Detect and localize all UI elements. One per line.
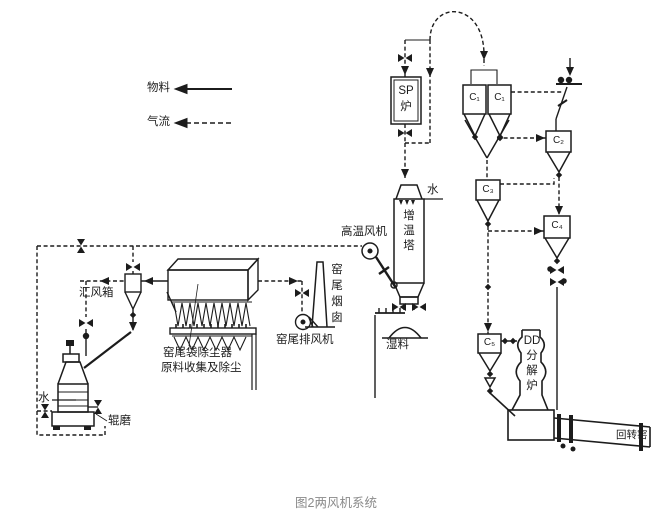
air-collecting-box [80, 274, 168, 330]
cyclone-c5-label: C₅ [478, 337, 501, 349]
c4-valve-icon [550, 266, 564, 274]
junction-dot [485, 284, 491, 290]
legend-airflow-label: 气流 [147, 116, 170, 129]
process-flow-diagram: 物料 气流 SP 炉 C₁ C₁ C₂ C₃ C₄ C₅ DD 分 解 炉 回转… [0, 0, 672, 516]
arrow-down-icon [401, 66, 409, 75]
legend-arrows [175, 85, 232, 128]
cyclone-c1a-label: C₁ [463, 92, 486, 104]
legend-material-label: 物料 [147, 82, 170, 95]
tower-discharge-conveyor [375, 308, 405, 398]
rotary-kiln-label: 回转窑 [616, 429, 648, 441]
arrow-down-icon [480, 51, 488, 60]
high-temp-fan-label: 高温风机 [341, 226, 387, 239]
junction-dot [487, 371, 493, 377]
cyclone-c1b-label: C₁ [488, 92, 511, 104]
figure-caption: 图2两风机系统 [0, 492, 672, 511]
cyclone-c4 [544, 216, 570, 410]
mill-water-label: 水 [38, 392, 50, 405]
wet-material-pile [382, 328, 428, 339]
tower-water-label: 水 [427, 184, 439, 197]
raw-material-note-label: 原料收集及除尘 [161, 362, 242, 375]
airflow-arrow-icon [175, 119, 187, 128]
kiln-tail-exhaust-fan-label: 窑尾排风机 [276, 334, 334, 347]
roller-mill-label: 辊磨 [108, 415, 131, 428]
arrow-down-icon [555, 206, 563, 215]
arrow-left-icon [100, 277, 109, 285]
kiln-tail-chimney-label: 窑 尾 烟 囱 [330, 262, 344, 326]
arrow-down-icon [129, 322, 137, 331]
wet-material-label: 湿料 [386, 339, 409, 352]
branch-valve-icon [126, 263, 140, 271]
junction-dot [130, 312, 136, 318]
junction-dot [554, 258, 560, 264]
junction-dot [487, 388, 493, 394]
arrow-right-icon [536, 134, 545, 142]
air-collecting-box-label: 汇风箱 [79, 287, 114, 300]
cyclone-c2-label: C₂ [546, 135, 571, 147]
sp-furnace-label: SP 炉 [391, 83, 421, 115]
mill-feed-piping [37, 329, 131, 411]
arrow-down-icon [401, 169, 409, 178]
conditioning-tower-label: 增 温 塔 [402, 209, 416, 254]
arrow-right-icon [534, 227, 543, 235]
bag-dust-collector-label: 窑尾袋除尘器 [163, 347, 232, 360]
cyclone-c4-label: C₄ [544, 220, 570, 232]
arrow-down-icon [484, 323, 492, 332]
arrow-down-icon [426, 68, 434, 77]
arrow-down-icon [566, 67, 574, 76]
c4-valve-icon [550, 278, 564, 286]
mill-feed-valve-icon [79, 319, 93, 327]
junction-dot [502, 338, 508, 344]
junction-dot [556, 172, 562, 178]
cyclone-c3-label: C₃ [476, 184, 500, 196]
diagram-linework [0, 0, 672, 516]
arrow-left-icon [144, 277, 153, 285]
dd-calciner-label: DD 分 解 炉 [518, 334, 546, 394]
junction-dot [510, 338, 516, 344]
kiln-hood [508, 410, 554, 440]
arrow-right-icon [289, 277, 298, 285]
junction-dot [485, 221, 491, 227]
material-arrow-icon [175, 85, 187, 94]
roller-mill [52, 340, 107, 430]
high-temp-fan [362, 243, 397, 288]
